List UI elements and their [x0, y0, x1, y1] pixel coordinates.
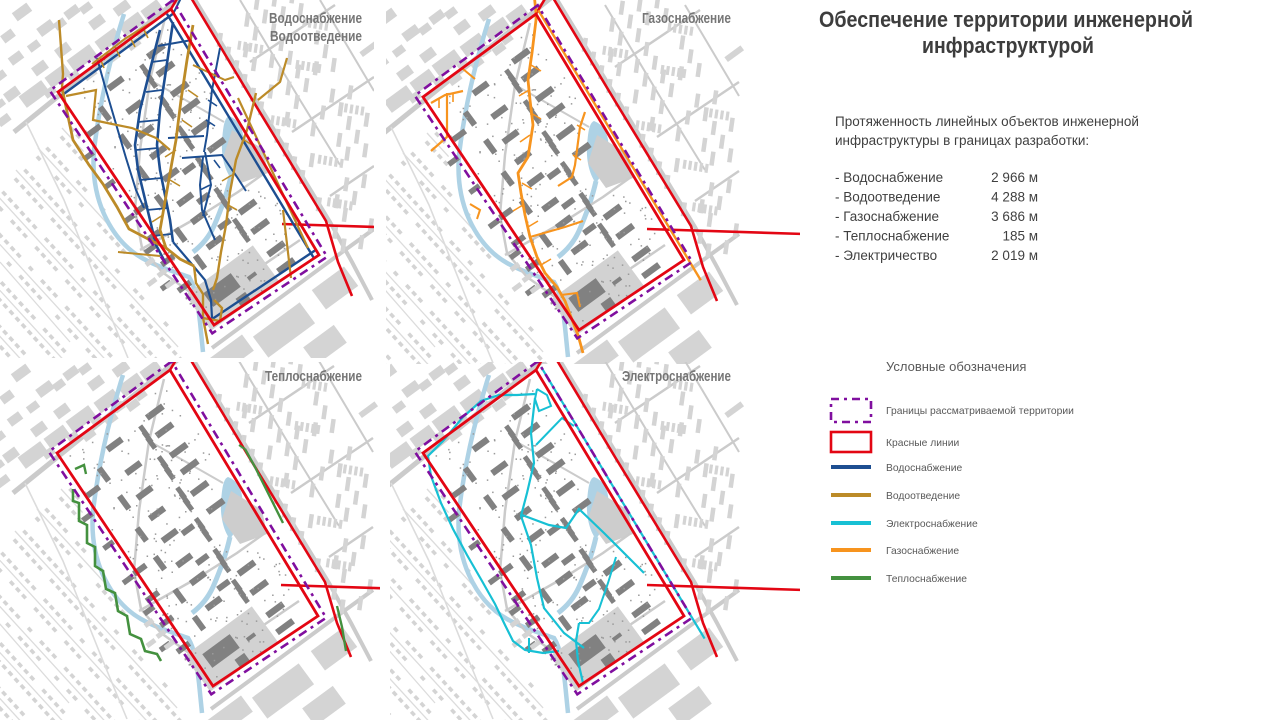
svg-text:инфраструктуры в границах разр: инфраструктуры в границах разработки: — [835, 133, 1089, 148]
svg-text:- Водоснабжение: - Водоснабжение — [835, 170, 943, 185]
svg-text:2 019 м: 2 019 м — [991, 248, 1038, 263]
svg-text:2 966 м: 2 966 м — [991, 170, 1038, 185]
svg-text:- Электричество: - Электричество — [835, 248, 937, 263]
svg-text:4 288 м: 4 288 м — [991, 190, 1038, 205]
svg-text:инфраструктурой: инфраструктурой — [922, 33, 1094, 58]
svg-text:- Теплоснабжение: - Теплоснабжение — [835, 229, 949, 244]
svg-text:Водоотведение: Водоотведение — [270, 28, 362, 45]
svg-text:Протяженность линейных объекто: Протяженность линейных объектов инженерн… — [835, 114, 1139, 129]
svg-text:Условные обозначения: Условные обозначения — [886, 359, 1026, 374]
svg-text:Электроснабжение: Электроснабжение — [622, 368, 731, 385]
svg-text:Газоснабжение: Газоснабжение — [886, 545, 959, 557]
svg-text:3 686 м: 3 686 м — [991, 209, 1038, 224]
svg-text:- Водоотведение: - Водоотведение — [835, 190, 940, 205]
svg-text:Красные линии: Красные линии — [886, 438, 959, 449]
svg-text:Газоснабжение: Газоснабжение — [642, 10, 731, 27]
svg-text:Границы рассматриваемой террит: Границы рассматриваемой территории — [886, 406, 1074, 417]
svg-text:Водоотведение: Водоотведение — [886, 491, 960, 502]
svg-text:Теплоснабжение: Теплоснабжение — [265, 368, 362, 385]
svg-text:Водоснабжение: Водоснабжение — [269, 10, 362, 27]
svg-text:- Газоснабжение: - Газоснабжение — [835, 209, 939, 224]
svg-text:Обеспечение территории инженер: Обеспечение территории инженерной — [819, 7, 1193, 32]
svg-text:Теплоснабжение: Теплоснабжение — [886, 573, 967, 585]
svg-text:185 м: 185 м — [1002, 229, 1038, 244]
svg-text:Электроснабжение: Электроснабжение — [886, 518, 978, 530]
svg-text:Водоснабжение: Водоснабжение — [886, 462, 962, 474]
